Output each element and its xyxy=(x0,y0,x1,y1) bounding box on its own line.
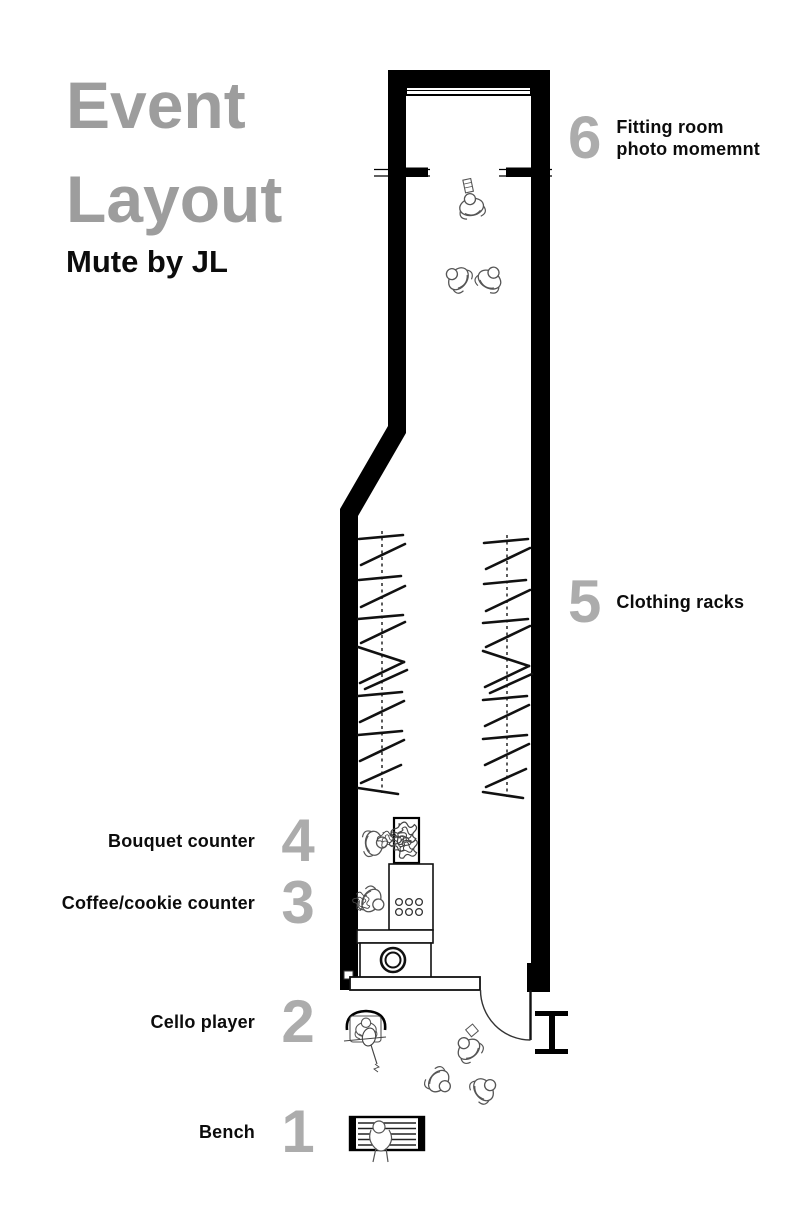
visitor xyxy=(473,261,507,295)
callout-label: Fitting room photo momemnt xyxy=(616,116,760,160)
clothing-rack-left xyxy=(358,531,407,794)
visitor xyxy=(467,1071,502,1106)
callout-clothing-racks: 5 Clothing racks xyxy=(568,570,744,634)
visitor xyxy=(422,1064,457,1099)
entry-door xyxy=(481,990,531,1040)
callout-label: Coffee/cookie counter xyxy=(62,892,255,914)
cello-player xyxy=(344,1011,386,1072)
visitor xyxy=(440,260,475,295)
callout-cello-player: Cello player 2 xyxy=(0,992,315,1052)
fitting-room-partition xyxy=(374,168,552,178)
callout-fitting-room: 6 Fitting room photo momemnt xyxy=(568,106,760,170)
callout-bench: Bench 1 xyxy=(0,1102,315,1162)
service-counter xyxy=(357,930,433,978)
callout-label: Bouquet counter xyxy=(108,830,255,852)
callout-label: Cello player xyxy=(151,1011,255,1033)
visitor-taking-photo xyxy=(453,177,486,220)
bouquet-display xyxy=(385,818,419,863)
photo-backdrop-rail xyxy=(406,87,531,95)
callout-label: Bench xyxy=(199,1121,255,1143)
visitor-with-bouquet xyxy=(362,829,389,857)
callout-coffee-counter: Coffee/cookie counter 3 xyxy=(0,873,315,933)
callout-label: Clothing racks xyxy=(616,591,744,613)
callout-bouquet-counter: Bouquet counter 4 xyxy=(0,811,315,871)
callout-number: 4 xyxy=(281,811,315,871)
callout-number: 6 xyxy=(568,108,601,168)
callout-number: 1 xyxy=(281,1102,315,1162)
visitor-at-coffee xyxy=(355,884,389,918)
clothing-rack-right xyxy=(483,535,532,798)
callout-number: 5 xyxy=(568,572,601,632)
callout-number: 2 xyxy=(281,992,315,1052)
steel-column xyxy=(535,1011,568,1054)
visitor-with-bag xyxy=(448,1024,490,1066)
coffee-counter xyxy=(389,864,433,930)
callout-number: 3 xyxy=(281,873,315,933)
